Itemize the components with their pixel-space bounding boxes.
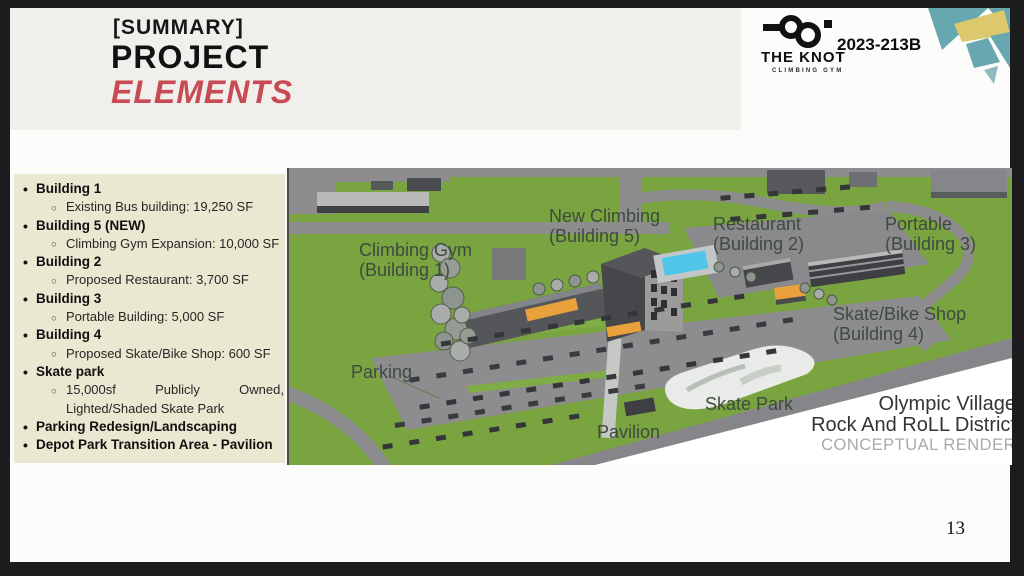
page-subtitle: ELEMENTS	[111, 74, 293, 111]
label-line: (Building 3)	[885, 234, 976, 254]
logo-tagline: CLIMBING GYM	[772, 68, 843, 74]
label-line: Restaurant	[713, 214, 804, 234]
label-line: Climbing Gym	[359, 240, 472, 260]
subitem-word: Publicly	[155, 381, 200, 399]
list-item: Skate park	[14, 363, 282, 381]
list-item: Parking Redesign/Landscaping	[14, 418, 282, 436]
label-line: (Building 5)	[549, 226, 660, 246]
render-caption: Olympic Village Rock And RoLL District C…	[811, 394, 1012, 455]
label-line: (Building 2)	[713, 234, 804, 254]
logo-name: THE KNOT	[761, 49, 846, 66]
label-new-climbing: New Climbing (Building 5)	[549, 206, 660, 246]
title-kicker: [SUMMARY]	[113, 16, 244, 40]
label-climbing-gym: Climbing Gym (Building 1)	[359, 240, 472, 280]
list-subitem: Climbing Gym Expansion: 10,000 SF	[14, 235, 282, 253]
caption-line: CONCEPTUAL RENDER	[811, 436, 1012, 455]
list-subitem: Proposed Skate/Bike Shop: 600 SF	[14, 345, 282, 363]
list-item: Building 4	[14, 326, 282, 344]
label-skate-bike-shop: Skate/Bike Shop (Building 4)	[833, 304, 966, 344]
caption-line: Rock And RoLL District	[811, 415, 1012, 436]
list-item: Depot Park Transition Area - Pavilion	[14, 436, 282, 454]
title-block: [SUMMARY] PROJECT ELEMENTS	[10, 8, 741, 130]
site-rendering: Climbing Gym (Building 1) New Climbing (…	[287, 168, 1012, 465]
list-subitem: Portable Building: 5,000 SF	[14, 308, 282, 326]
project-elements-list: Building 1 Existing Bus building: 19,250…	[14, 174, 285, 463]
list-subitem-continuation: Lighted/Shaded Skate Park	[14, 400, 282, 418]
list-item: Building 2	[14, 253, 282, 271]
list-subitem: 15,000sf Publicly Owned,	[14, 381, 282, 399]
corner-decoration-icon	[924, 8, 1010, 126]
label-parking: Parking	[351, 362, 412, 382]
label-line: Skate/Bike Shop	[833, 304, 966, 324]
label-line: Portable	[885, 214, 976, 234]
list-subitem: Existing Bus building: 19,250 SF	[14, 198, 282, 216]
list-item: Building 1	[14, 180, 282, 198]
project-ref-number: 2023-213B	[837, 35, 921, 55]
label-pavilion: Pavilion	[597, 422, 660, 442]
knot-logo-icon	[763, 14, 835, 50]
label-line: (Building 1)	[359, 260, 472, 280]
list-item: Building 3	[14, 290, 282, 308]
subitem-word: Owned,	[239, 381, 284, 399]
slide: [SUMMARY] PROJECT ELEMENTS THE KNOT CLIM…	[10, 8, 1010, 562]
list-item: Building 5 (NEW)	[14, 217, 282, 235]
label-line: (Building 4)	[833, 324, 966, 344]
caption-line: Olympic Village	[811, 394, 1012, 415]
label-portable: Portable (Building 3)	[885, 214, 976, 254]
subitem-word: 15,000sf	[66, 381, 116, 399]
list-subitem: Proposed Restaurant: 3,700 SF	[14, 271, 282, 289]
label-skate-park: Skate Park	[705, 394, 793, 414]
label-restaurant: Restaurant (Building 2)	[713, 214, 804, 254]
logo-block: THE KNOT CLIMBING GYM 2023-213B	[741, 8, 1010, 130]
label-line: New Climbing	[549, 206, 660, 226]
page-number: 13	[946, 518, 965, 540]
page-title: PROJECT	[111, 39, 269, 76]
